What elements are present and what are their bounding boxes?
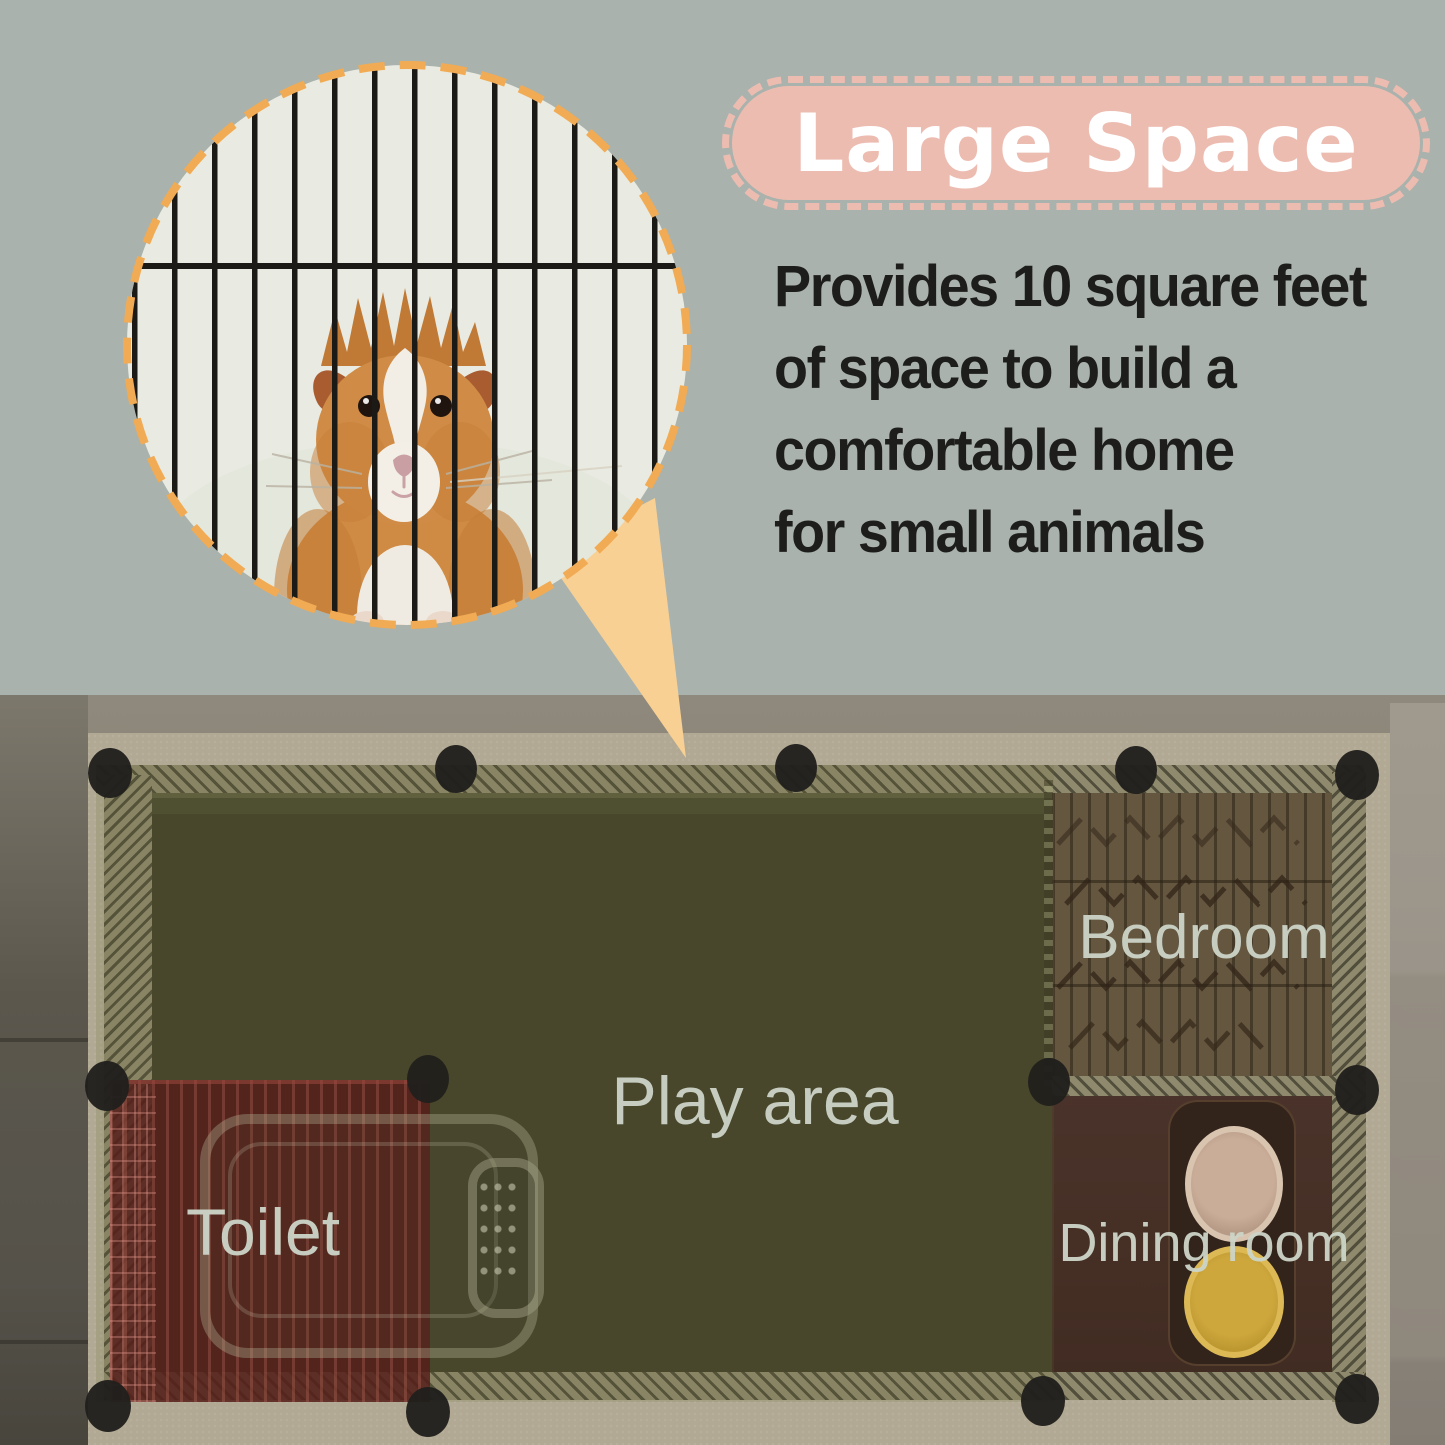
- description-line: of space to build a: [774, 328, 1408, 410]
- guinea-pig-illustration: [266, 288, 622, 692]
- wall-left: [0, 695, 88, 1445]
- cage-frame-top: [96, 765, 1364, 793]
- magnifier-circle: [127, 65, 687, 625]
- dining-room-label: Dining room: [1038, 1212, 1370, 1274]
- litter-pan-holes: [478, 1180, 518, 1284]
- dashed-border: [127, 65, 687, 625]
- description-line: Provides 10 square feet: [774, 246, 1408, 328]
- bedroom-label: Bedroom: [1064, 902, 1344, 973]
- play-area-label: Play area: [595, 1062, 915, 1140]
- feature-description: Provides 10 square feet of space to buil…: [774, 246, 1408, 574]
- cage-bars: [126, 60, 698, 626]
- callout-inset: [90, 30, 730, 770]
- bedroom-shelf-line: [1052, 880, 1338, 883]
- tiles-right: [1390, 703, 1445, 1445]
- play-bedroom-divider: [1044, 780, 1053, 1086]
- description-line: for small animals: [774, 492, 1408, 574]
- bedroom-shelf-line: [1052, 984, 1338, 987]
- wall-seam: [0, 1038, 88, 1042]
- feature-title: Large Space: [732, 86, 1420, 200]
- wall-seam: [0, 1340, 88, 1344]
- description-line: comfortable home: [774, 410, 1408, 492]
- toilet-label: Toilet: [148, 1194, 378, 1270]
- bedroom-dining-divider: [1052, 1076, 1364, 1096]
- feature-banner: Large Space: [732, 86, 1420, 200]
- page-canvas: Play area Bedroom Toilet Dining room Lar…: [0, 0, 1445, 1445]
